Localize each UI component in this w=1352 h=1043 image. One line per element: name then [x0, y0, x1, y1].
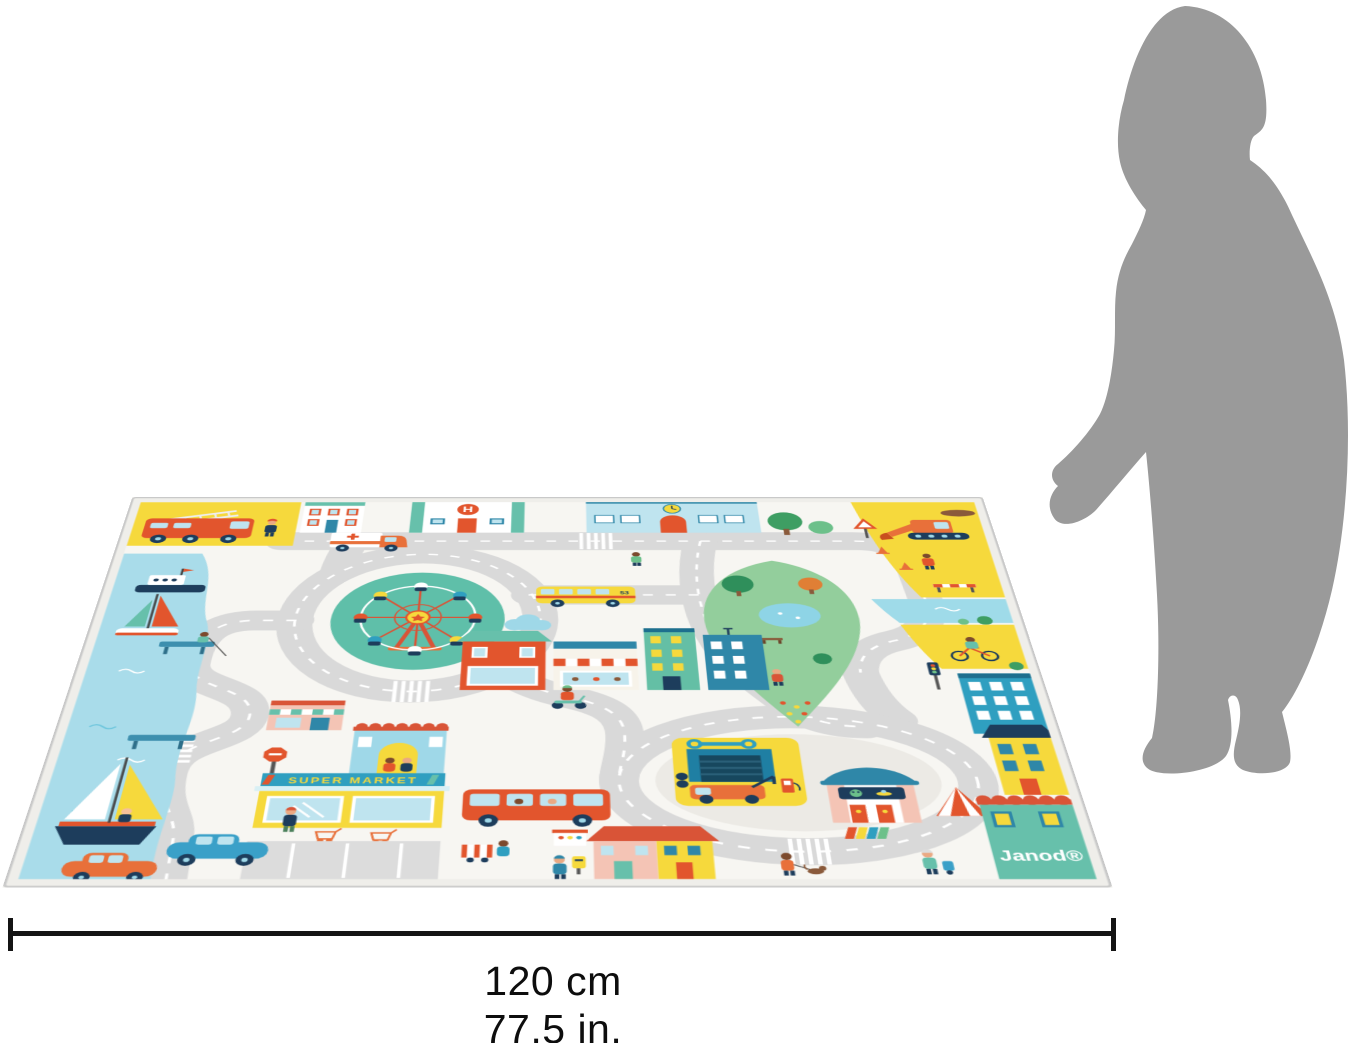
parking-lot — [240, 841, 441, 880]
house-red — [453, 631, 552, 690]
child-silhouette — [1030, 0, 1352, 790]
supermarket-sign: SUPER MARKET — [287, 777, 418, 786]
house-green-apartment — [643, 628, 700, 690]
garage — [671, 738, 808, 806]
dimension-line — [10, 931, 1115, 936]
janod-logo: Janod® — [997, 848, 1086, 864]
bottom-houses — [586, 826, 723, 879]
dimension-label: 120 cm 77,5 in. — [353, 958, 753, 1043]
school-building — [586, 500, 761, 533]
play-mat: H — [2, 497, 1112, 888]
dimension-cm: 120 cm — [353, 958, 753, 1006]
dimension-inches: 77,5 in. — [353, 1006, 753, 1043]
fire-station-scene — [127, 502, 302, 546]
music-school — [347, 723, 449, 776]
school-bus-number: 53 — [620, 591, 630, 596]
town-building — [300, 502, 366, 532]
candy-stand — [552, 830, 588, 846]
house-blue-apartment — [702, 629, 769, 690]
house-pink — [266, 701, 346, 731]
product-size-diagram: H — [0, 0, 1352, 1043]
play-mat-illustration: H — [2, 497, 1112, 888]
dimension-end-cap-right — [1111, 918, 1116, 951]
hospital-building: H — [409, 501, 525, 532]
hospital-sign: H — [463, 506, 474, 514]
house-bakery — [553, 642, 639, 690]
